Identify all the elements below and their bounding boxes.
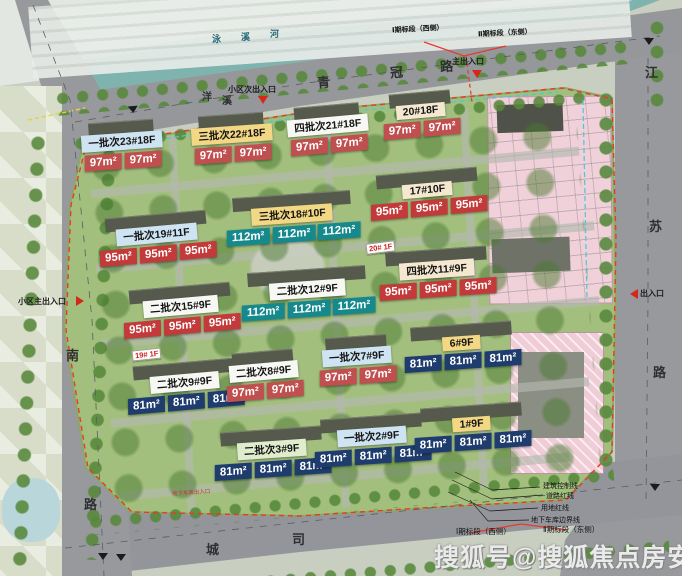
road-name-char: 江 — [645, 62, 658, 81]
road-name-char: 路 — [653, 362, 666, 381]
unit-size-tag: 112m² — [227, 228, 270, 247]
unit-size-tag: 97m² — [320, 368, 357, 387]
unit-size-tag: 81m² — [355, 447, 392, 466]
unit-size-tag: 81m² — [415, 435, 452, 454]
unit-size-tag: 97m² — [267, 380, 304, 399]
building-label-plate: 一批次7#9F — [321, 346, 391, 368]
phase-label-bottom-east: Ⅱ期标段（东侧） — [543, 524, 599, 535]
site-plan-map: 一批次23#18F97m²97m²三批次22#18F97m²97m²四批次21#… — [0, 0, 682, 576]
unit-size-tag: 81m² — [215, 462, 252, 481]
road-name-char: 苏 — [649, 216, 662, 235]
entrance-label-secondary: 小区次出入口 — [228, 84, 276, 95]
unit-size-tag: 95m² — [124, 320, 161, 339]
watermark: 搜狐号@搜狐焦点房安站 — [434, 538, 682, 574]
road-name-char: 路 — [84, 494, 97, 513]
unit-size-tag: 97m² — [195, 146, 232, 165]
road-name-char: 南 — [66, 345, 79, 364]
unit-size-tag: 112m² — [318, 221, 361, 240]
unit-size-tag: 95m² — [100, 248, 137, 267]
building-label-plate: 6#9F — [442, 335, 481, 352]
road-name-char: 青 — [316, 71, 331, 91]
phase-label-bottom-west: Ⅰ期标段（西侧） — [456, 526, 511, 537]
unit-size-tag: 97m² — [331, 134, 368, 153]
building-label-plate: 20#18F — [395, 102, 446, 120]
unit-size-tag: 95m² — [179, 241, 216, 260]
entrance-marker-icon — [76, 296, 84, 306]
road-arrow-icon — [650, 484, 660, 491]
unit-size-tag: 112m² — [333, 296, 376, 315]
building-b7: 一批次7#9F97m²97m² — [318, 345, 397, 386]
unit-size-tag: 95m² — [459, 277, 496, 296]
unit-size-tag: 97m² — [227, 383, 264, 402]
legend-line-label: 建筑控制线 — [543, 481, 578, 491]
road-arrow-icon — [98, 553, 108, 560]
unit-size-tag: 81m² — [128, 396, 165, 415]
road-arrow-icon — [128, 106, 139, 114]
building-b22: 三批次22#18F97m²97m² — [191, 123, 274, 165]
building-b8: 二批次8#9F97m²97m² — [225, 360, 305, 403]
unit-size-tag: 81m² — [255, 460, 292, 479]
building-label-plate: 二批次3#9F — [236, 439, 306, 461]
legend-line-label: 地下车库边界线 — [531, 515, 580, 525]
unit-size-tag: 97m² — [85, 153, 122, 172]
unit-size-tag: 95m² — [411, 198, 448, 217]
unit-size-tag: 95m² — [164, 316, 201, 335]
unit-size-tag: 81m² — [494, 430, 531, 449]
road-name-char: 城 — [206, 539, 219, 558]
river-name-char: 溪 — [241, 30, 250, 43]
unit-size-tag: 81m² — [444, 352, 481, 371]
road-arrow-icon — [116, 554, 126, 561]
entrance-marker-icon — [258, 96, 268, 104]
building-b23: 一批次23#18F97m²97m² — [81, 130, 164, 172]
building-b21: 四批次21#18F97m²97m² — [287, 114, 371, 157]
unit-size-tag: 97m² — [291, 137, 328, 156]
unit-size-tag: 95m² — [371, 202, 408, 221]
unit-size-tag: 81m² — [315, 449, 352, 468]
entrance-marker-icon — [472, 70, 482, 78]
unit-size-tag: 95m² — [420, 280, 457, 299]
junction-name-char: 洋 — [202, 88, 212, 103]
building-label-plate: 1#9F — [452, 416, 491, 433]
legend-line-label: 道路红线 — [546, 491, 574, 501]
building-label-plate: 17#10F — [402, 181, 453, 199]
building-b20: 20#18F97m²97m² — [382, 101, 461, 141]
road-name-char: 冠 — [389, 61, 404, 81]
entrance-label-main-left: 小区主出入口 — [18, 296, 66, 307]
road-name-char: 司 — [292, 529, 305, 548]
legend-line-label: 用地红线 — [541, 503, 569, 513]
unit-size-tag: 95m² — [203, 313, 240, 332]
unit-size-tag: 95m² — [380, 282, 417, 301]
unit-size-tag: 112m² — [287, 299, 330, 318]
entrance-marker-icon — [630, 289, 638, 299]
river-name-char: 河 — [270, 27, 279, 40]
unit-size-tag: 97m² — [360, 365, 397, 384]
unit-size-tag: 95m² — [450, 195, 487, 214]
building-label-plate: 一批次2#9F — [336, 426, 406, 448]
unit-size-tag: 95m² — [140, 244, 177, 263]
unit-size-tag: 97m² — [423, 118, 460, 137]
unit-size-tag: 81m² — [405, 354, 442, 373]
entrance-label-main-top: 主出入口 — [452, 56, 484, 67]
unit-size-tag: 112m² — [272, 224, 315, 243]
road-arrow-icon — [644, 38, 654, 45]
unit-size-tag: 81m² — [168, 392, 205, 411]
unit-size-tag: 112m² — [242, 303, 285, 322]
river-name-char: 泳 — [212, 32, 221, 45]
unit-size-tag: 81m² — [454, 433, 491, 452]
unit-size-tag: 97m² — [384, 121, 421, 140]
entrance-label-right: 出入口 — [640, 288, 664, 299]
unit-size-tag: 97m² — [125, 150, 162, 169]
unit-size-tag: 97m² — [235, 143, 272, 162]
unit-size-tag: 81m² — [484, 349, 521, 368]
